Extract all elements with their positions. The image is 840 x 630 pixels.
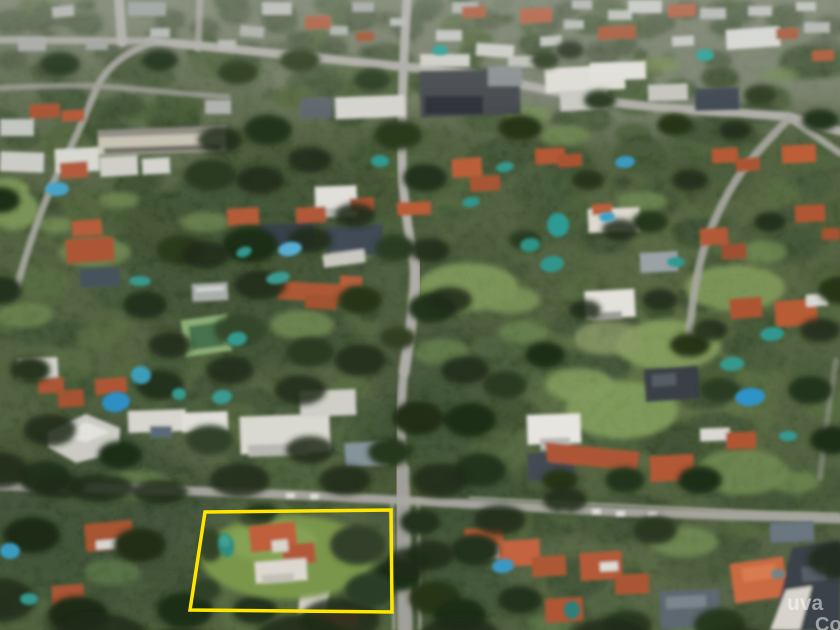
svg-text:Co: Co [815,614,840,630]
svg-text:uva: uva [787,592,824,615]
